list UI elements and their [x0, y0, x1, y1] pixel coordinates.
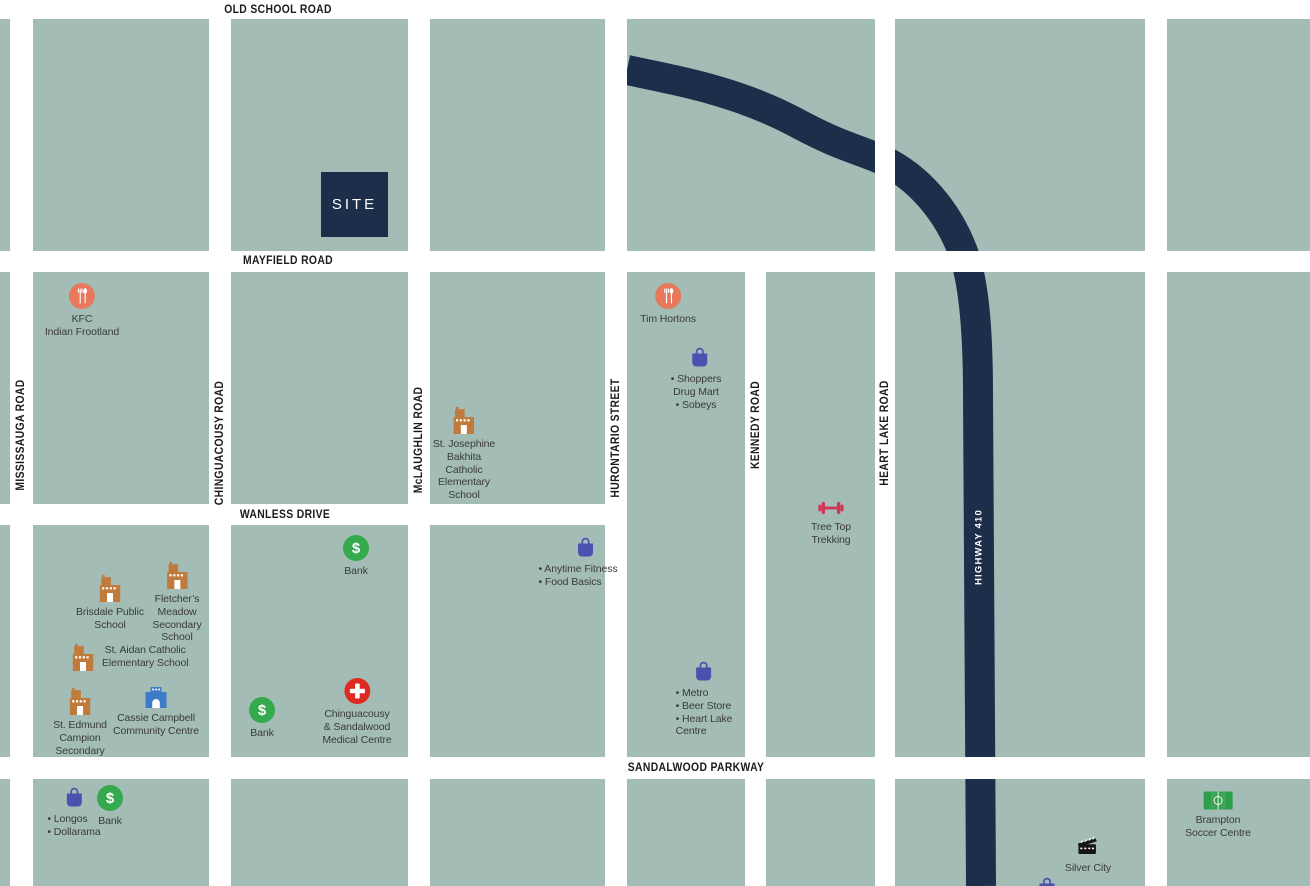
dumbbell-icon: [818, 499, 844, 517]
poi-bank-sandalwood: Bank: [97, 785, 123, 828]
poi-label: • Anytime Fitness • Food Basics: [538, 563, 617, 589]
poi-shoppers-drug-mart-sobeys: • Shoppers Drug Mart • Sobeys: [679, 345, 722, 411]
poi-label: Bank: [344, 565, 368, 578]
road-label-kennedy-road: KENNEDY ROAD: [750, 381, 762, 469]
school-icon: [69, 687, 91, 715]
restaurant-icon: [69, 283, 95, 309]
poi-anytime-fitness-food-basics: • Anytime Fitness • Food Basics: [538, 535, 617, 589]
bank-icon: [343, 535, 369, 561]
poi-shopping-plaza-partial: [1035, 875, 1059, 886]
road-label-wanless-drive: WANLESS DRIVE: [240, 509, 330, 521]
poi-label: Brampton Soccer Centre: [1185, 814, 1251, 840]
poi-silver-city: Silver City: [1065, 834, 1111, 875]
poi-label: St. Aidan Catholic Elementary School: [102, 644, 188, 670]
poi-label: Bank: [250, 727, 274, 740]
community-centre-icon: [144, 686, 168, 708]
clapperboard-icon: [1075, 834, 1101, 858]
poi-st-josephine-bakhita-school: St. Josephine Bakhita Catholic Elementar…: [433, 406, 495, 502]
road-label-sandalwood-parkway: SANDALWOOD PARKWAY: [628, 762, 764, 774]
poi-longos-dollarama: • Longos • Dollarama: [47, 785, 100, 839]
medical-cross-icon: [344, 678, 370, 704]
poi-label: Cassie Campbell Community Centre: [113, 712, 199, 738]
road-label-mississauga-road: MISSISSAUGA ROAD: [15, 379, 27, 490]
shopping-bag-icon: [573, 535, 597, 559]
road-label-old-school-road: OLD SCHOOL ROAD: [224, 4, 332, 16]
poi-label: • Metro • Beer Store • Heart Lake Centre: [676, 687, 733, 738]
road-label-mclaughlin-road: McLAUGHLIN ROAD: [413, 387, 425, 494]
poi-label: • Longos • Dollarama: [47, 813, 100, 839]
road-label-hurontario-street: HURONTARIO STREET: [610, 378, 622, 497]
poi-brisdale-public-school: Brisdale Public School: [76, 574, 144, 632]
shopping-bag-icon: [692, 659, 716, 683]
school-icon: [166, 561, 188, 589]
road-label-chinguacousy-road: CHINGUACOUSY ROAD: [214, 381, 226, 505]
bank-icon: [97, 785, 123, 811]
poi-label: Tree Top Trekking: [811, 521, 851, 547]
poi-st-edmund-campion-secondary: St. Edmund Campion Secondary: [53, 687, 107, 757]
poi-tree-top-trekking: Tree Top Trekking: [811, 499, 851, 547]
poi-st-aidan-catholic-elementary: St. Aidan Catholic Elementary School: [72, 643, 188, 671]
area-amenities-map: OLD SCHOOL ROAD MAYFIELD ROAD WANLESS DR…: [0, 0, 1310, 886]
restaurant-icon: [655, 283, 681, 309]
soccer-field-icon: [1203, 791, 1233, 810]
poi-label: Chinguacousy & Sandalwood Medical Centre: [322, 708, 391, 746]
school-icon: [453, 406, 475, 434]
bank-icon: [249, 697, 275, 723]
road-label-mayfield-road: MAYFIELD ROAD: [243, 255, 333, 267]
shopping-bag-icon: [1035, 875, 1059, 886]
poi-label: St. Edmund Campion Secondary: [53, 719, 107, 757]
poi-label: • Shoppers Drug Mart • Sobeys: [671, 373, 722, 411]
map-canvas: [0, 0, 1310, 886]
site-label: SITE: [332, 196, 377, 213]
poi-chinguacousy-sandalwood-medical-centre: Chinguacousy & Sandalwood Medical Centre: [322, 678, 391, 746]
school-icon: [72, 643, 94, 671]
poi-fletchers-meadow-secondary: Fletcher’s Meadow Secondary School: [152, 561, 201, 644]
site-marker: SITE: [321, 172, 388, 237]
city-blocks: [0, 19, 1310, 886]
highway-410-label: HIGHWAY 410: [974, 509, 985, 585]
shopping-bag-icon: [688, 345, 712, 369]
poi-label: Tim Hortons: [640, 313, 696, 326]
poi-label: St. Josephine Bakhita Catholic Elementar…: [433, 438, 495, 502]
poi-cassie-campbell-community-centre: Cassie Campbell Community Centre: [113, 686, 199, 738]
poi-bank-wanless-south: Bank: [249, 697, 275, 740]
poi-label: Bank: [98, 815, 122, 828]
poi-label: Brisdale Public School: [76, 606, 144, 632]
poi-tim-hortons: Tim Hortons: [640, 283, 696, 326]
school-icon: [99, 574, 121, 602]
road-label-heart-lake-road: HEART LAKE ROAD: [879, 380, 891, 485]
poi-label: KFC Indian Frootland: [45, 313, 119, 339]
poi-bank-wanless-north: Bank: [343, 535, 369, 578]
poi-kfc-indian-frootland: KFC Indian Frootland: [45, 283, 119, 339]
poi-label: Fletcher’s Meadow Secondary School: [152, 593, 201, 644]
poi-metro-beer-store-heart-lake-centre: • Metro • Beer Store • Heart Lake Centre: [676, 659, 733, 738]
poi-label: Silver City: [1065, 862, 1111, 875]
shopping-bag-icon: [62, 785, 86, 809]
poi-brampton-soccer-centre: Brampton Soccer Centre: [1185, 791, 1251, 840]
